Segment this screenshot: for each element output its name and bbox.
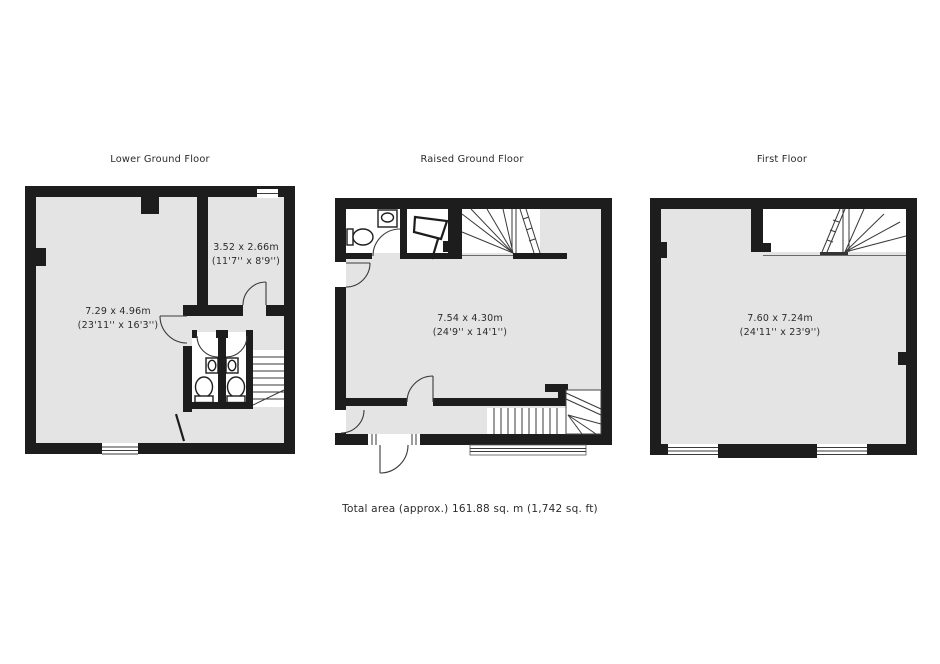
room-dimensions-imperial: (24'9'' x 14'1''): [433, 327, 507, 338]
room-dimensions-imperial: (11'7'' x 8'9''): [212, 256, 280, 267]
floor-plan-lower-ground-floor: Lower Ground Floor: [25, 154, 295, 454]
entrance-door: [368, 434, 420, 473]
room-dimensions-metric: 3.52 x 2.66m: [213, 242, 279, 253]
sink-icon: [378, 210, 397, 227]
room-dimensions-metric: 7.54 x 4.30m: [437, 313, 503, 324]
wall-stub: [661, 242, 667, 258]
window: [817, 444, 867, 455]
staircase-up: [751, 209, 906, 256]
window: [102, 443, 138, 454]
floor-title-lower-ground: Lower Ground Floor: [110, 154, 210, 165]
room-dimensions-imperial: (24'11'' x 23'9''): [740, 327, 821, 338]
total-area-label: Total area (approx.) 161.88 sq. m (1,742…: [341, 503, 598, 515]
wall-stub: [898, 352, 906, 365]
floor-plan-first-floor: First Floor: [650, 154, 917, 458]
floor-title-first-floor: First Floor: [757, 154, 808, 165]
wall-stub: [141, 197, 159, 214]
sink-icon: [206, 358, 218, 373]
window: [470, 445, 586, 455]
window: [668, 444, 718, 455]
toilet-icon: [195, 377, 213, 403]
entry-closet: [407, 209, 462, 259]
floor-title-raised-ground: Raised Ground Floor: [420, 154, 524, 165]
floor-plan-raised-ground-floor: Raised Ground Floor: [335, 154, 612, 473]
sink-icon: [226, 358, 238, 373]
toilet-icon: [227, 377, 245, 403]
room-dimensions-metric: 7.29 x 4.96m: [85, 306, 151, 317]
staircase-down: [487, 408, 566, 434]
window: [257, 189, 278, 198]
staircase-up: [253, 350, 284, 407]
room-dimensions-imperial: (23'11'' x 16'3''): [78, 320, 159, 331]
floorplan-drawing: Lower Ground Floor: [0, 0, 940, 664]
chimney-breast: [36, 248, 46, 266]
floorplan-page: Lower Ground Floor: [0, 0, 940, 664]
room-dimensions-metric: 7.60 x 7.24m: [747, 313, 813, 324]
toilet-icon: [347, 229, 373, 245]
wc-cubicles: [183, 330, 253, 409]
